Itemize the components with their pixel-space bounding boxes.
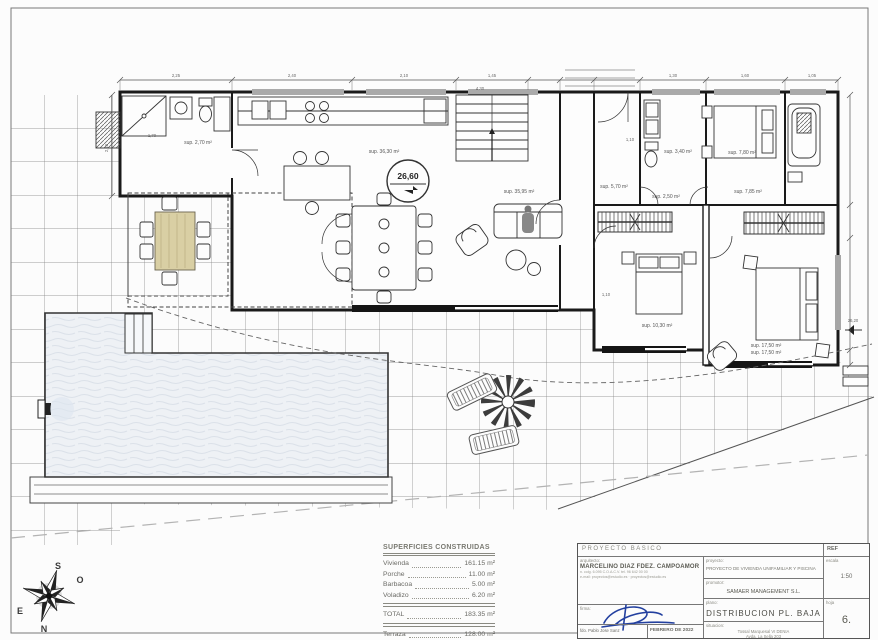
svg-text:4,30: 4,30	[476, 86, 485, 91]
promoter-cell: promotor: SAMAER MANAGEMENT S.L.	[704, 579, 824, 599]
svg-text:2,25: 2,25	[172, 73, 181, 78]
svg-text:1,10: 1,10	[626, 137, 635, 142]
svg-text:sup. 10,30 m²: sup. 10,30 m²	[642, 323, 673, 329]
svg-text:sup. 3,40 m²: sup. 3,40 m²	[664, 149, 692, 155]
titleblock-ref: REF	[824, 544, 869, 557]
sofa	[494, 204, 562, 238]
location-cell: situacion: Tossal Marquesal VI DENIA Avd…	[704, 622, 824, 638]
promoter-label: promotor:	[706, 580, 724, 585]
table-divider	[383, 623, 495, 627]
staircase	[456, 95, 528, 161]
project-title: PROYECTO DE VIVIENDA UNIFAMILIAR Y PISCI…	[706, 566, 821, 571]
table-row: Terraza128.00 m²	[383, 630, 495, 640]
washer	[170, 97, 192, 119]
plan-sheet: 26,60 26,20 2,25 2,40 2,10 1,45 1,30 1,6…	[0, 0, 878, 640]
scale-label: escala	[826, 558, 838, 563]
architect-label: arquitecto:	[580, 558, 701, 563]
areas-table-title: SUPERFICIES CONSTRUIDAS	[383, 544, 495, 556]
location-label: situacion:	[706, 623, 724, 628]
kitchen-counter	[238, 97, 448, 125]
svg-text:1,70: 1,70	[148, 133, 157, 138]
svg-text:sup. 2,50 m²: sup. 2,50 m²	[652, 194, 680, 200]
svg-text:1,05: 1,05	[808, 73, 817, 78]
level-marker: 26,60	[387, 160, 429, 202]
svg-text:sup. 17,50 m²: sup. 17,50 m²	[751, 343, 782, 349]
barbecue	[96, 112, 120, 148]
table-divider	[383, 603, 495, 607]
svg-text:sup. 35,95 m²: sup. 35,95 m²	[504, 189, 535, 195]
project-cell: proyecto: PROYECTO DE VIVIENDA UNIFAMILI…	[704, 557, 824, 579]
date-cell: FEBRERO DE 2022	[648, 624, 704, 638]
signed-by-cell: fdo. Pablo Jose Sanz	[578, 624, 648, 638]
entry-steps	[565, 70, 635, 86]
title-block: PROYECTO BASICO REF arquitecto: MARCELIN…	[577, 543, 870, 639]
laundry-counter	[214, 97, 230, 131]
location-line2: Avda. La Sella 203	[746, 634, 781, 639]
svg-text:sup. 5,70 m²: sup. 5,70 m²	[600, 184, 628, 190]
signature-cell: firma:	[578, 604, 704, 624]
titleblock-header: PROYECTO BASICO	[578, 544, 824, 557]
pool-steps	[125, 314, 152, 353]
compass-rose: S O E N	[15, 561, 83, 634]
svg-text:sup. 17,50 m²: sup. 17,50 m²	[751, 350, 782, 356]
table-total-row: TOTAL183.35 m²	[383, 610, 495, 621]
svg-text:1,30: 1,30	[669, 73, 678, 78]
scale-cell: escala 1:50	[824, 557, 869, 599]
coffee-table	[506, 250, 526, 270]
sheet-number: 6.	[826, 614, 867, 626]
sheet-name-cell: plano: DISTRIBUCION PL. BAJA	[704, 599, 824, 622]
svg-text:E: E	[17, 606, 23, 616]
svg-text:1,45: 1,45	[488, 73, 497, 78]
svg-text:N: N	[41, 624, 48, 634]
svg-text:1,10: 1,10	[602, 292, 611, 297]
shower	[122, 96, 166, 136]
sheet-name: DISTRIBUCION PL. BAJA	[706, 609, 821, 618]
svg-text:26,60: 26,60	[397, 171, 419, 181]
sheet-name-label: plano:	[706, 600, 718, 605]
promoter-name: SAMAER MANAGEMENT S.L.	[706, 589, 821, 595]
table-row: Vivienda161.15 m²	[383, 559, 495, 570]
svg-text:2,10: 2,10	[400, 73, 409, 78]
table-row: Porche11.00 m²	[383, 570, 495, 581]
scale-value: 1:50	[826, 574, 867, 580]
toilet	[199, 98, 212, 122]
svg-text:2,10: 2,10	[104, 143, 109, 152]
table-row: Voladizo6.20 m²	[383, 591, 495, 602]
sheet-number-label: hoja	[826, 600, 834, 605]
table-row: Barbacoa5.00 m²	[383, 580, 495, 591]
areas-table: SUPERFICIES CONSTRUIDAS Vivienda161.15 m…	[383, 544, 495, 640]
side-table	[528, 263, 541, 276]
project-label: proyecto:	[706, 558, 724, 563]
svg-text:sup. 7,85 m²: sup. 7,85 m²	[734, 189, 762, 195]
level-marker-right: 26,20	[845, 318, 862, 335]
svg-text:O: O	[76, 575, 83, 585]
svg-text:1,60: 1,60	[741, 73, 750, 78]
svg-text:S: S	[55, 561, 61, 571]
svg-text:26,20: 26,20	[848, 318, 859, 323]
svg-text:sup. 2,70 m²: sup. 2,70 m²	[184, 140, 212, 146]
sheet-number-cell: hoja 6.	[824, 599, 869, 638]
architect-contact2: e-mail: proyectos@estudio.es · proyectos…	[580, 575, 701, 580]
pool-jet	[38, 397, 74, 421]
svg-text:sup. 7,80 m²: sup. 7,80 m²	[728, 150, 756, 156]
svg-text:sup. 36,30 m²: sup. 36,30 m²	[369, 149, 400, 155]
svg-text:2,40: 2,40	[288, 73, 297, 78]
